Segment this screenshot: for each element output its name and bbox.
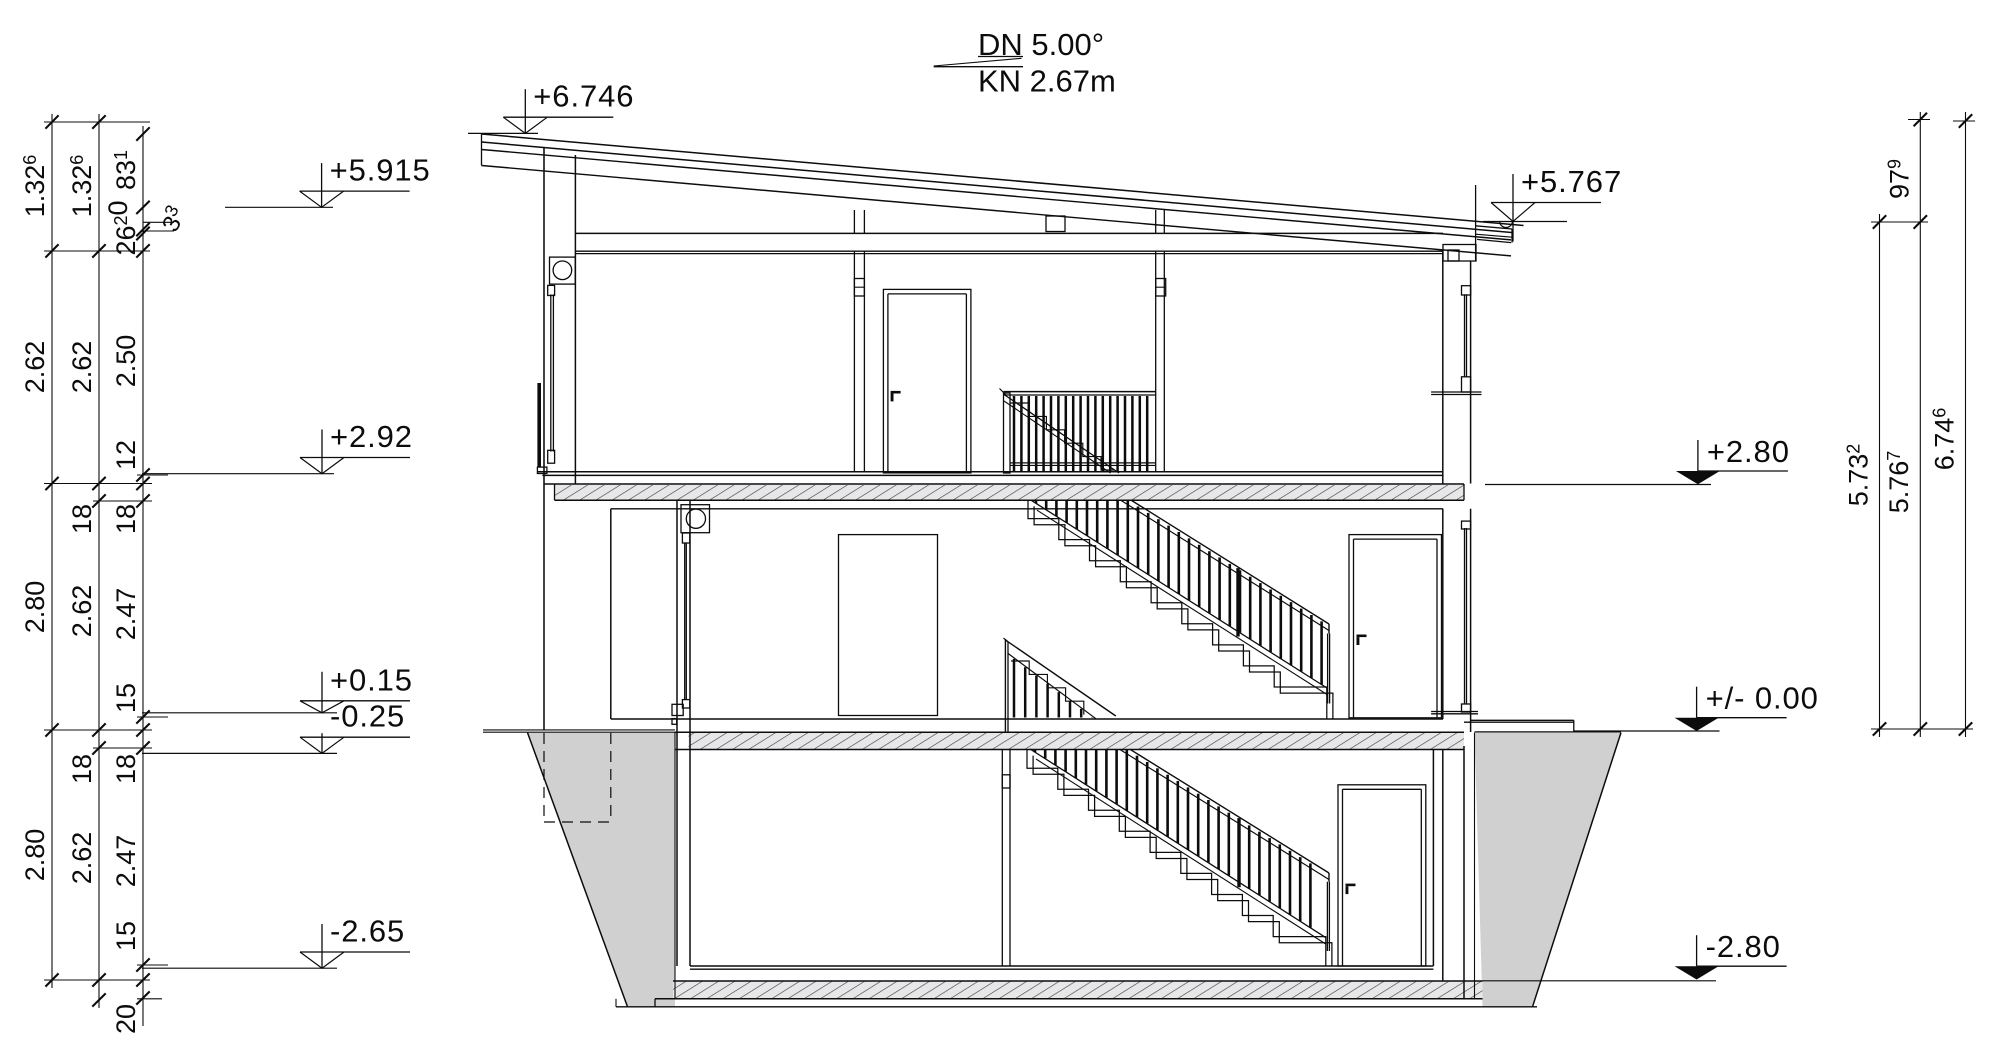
svg-text:+5.915: +5.915 bbox=[330, 153, 431, 188]
svg-text:-2.65: -2.65 bbox=[330, 914, 405, 949]
svg-text:15: 15 bbox=[111, 921, 141, 951]
svg-text:+5.767: +5.767 bbox=[1521, 164, 1622, 199]
svg-text:+2.80: +2.80 bbox=[1707, 434, 1790, 469]
svg-text:-2.80: -2.80 bbox=[1706, 929, 1781, 964]
svg-text:+6.746: +6.746 bbox=[533, 79, 634, 114]
svg-text:18: 18 bbox=[111, 504, 141, 534]
svg-text:+2.92: +2.92 bbox=[330, 419, 413, 454]
svg-text:+0.15: +0.15 bbox=[330, 662, 413, 697]
svg-text:18: 18 bbox=[67, 754, 97, 784]
svg-text:2.62: 2.62 bbox=[67, 341, 97, 394]
svg-text:18: 18 bbox=[111, 754, 141, 784]
svg-text:18: 18 bbox=[67, 504, 97, 534]
svg-text:2.47: 2.47 bbox=[111, 588, 141, 641]
svg-text:2.47: 2.47 bbox=[111, 835, 141, 888]
svg-text:-0.25: -0.25 bbox=[330, 699, 405, 734]
svg-text:+/- 0.00: +/- 0.00 bbox=[1706, 681, 1819, 716]
svg-text:15: 15 bbox=[111, 683, 141, 713]
svg-text:2.80: 2.80 bbox=[20, 581, 50, 634]
svg-text:2.62: 2.62 bbox=[20, 341, 50, 394]
svg-text:2.62: 2.62 bbox=[67, 832, 97, 885]
svg-text:KN 2.67m: KN 2.67m bbox=[978, 64, 1116, 99]
svg-text:12: 12 bbox=[111, 440, 141, 470]
svg-text:2.50: 2.50 bbox=[111, 335, 141, 388]
svg-text:2.80: 2.80 bbox=[20, 829, 50, 882]
svg-text:20: 20 bbox=[111, 1004, 141, 1034]
svg-text:2.62: 2.62 bbox=[67, 585, 97, 638]
